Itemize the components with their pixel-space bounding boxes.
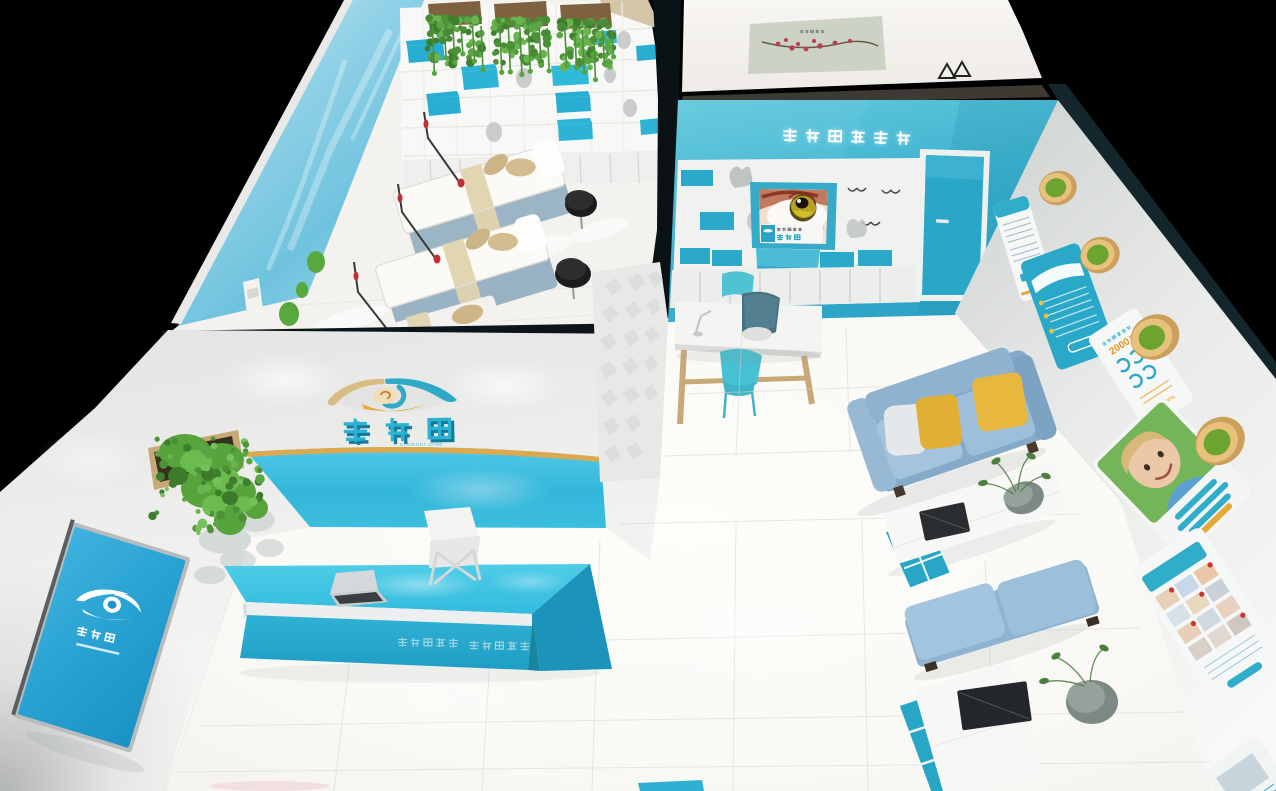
svg-text:EYESIGHT CARE: EYESIGHT CARE <box>400 442 443 447</box>
